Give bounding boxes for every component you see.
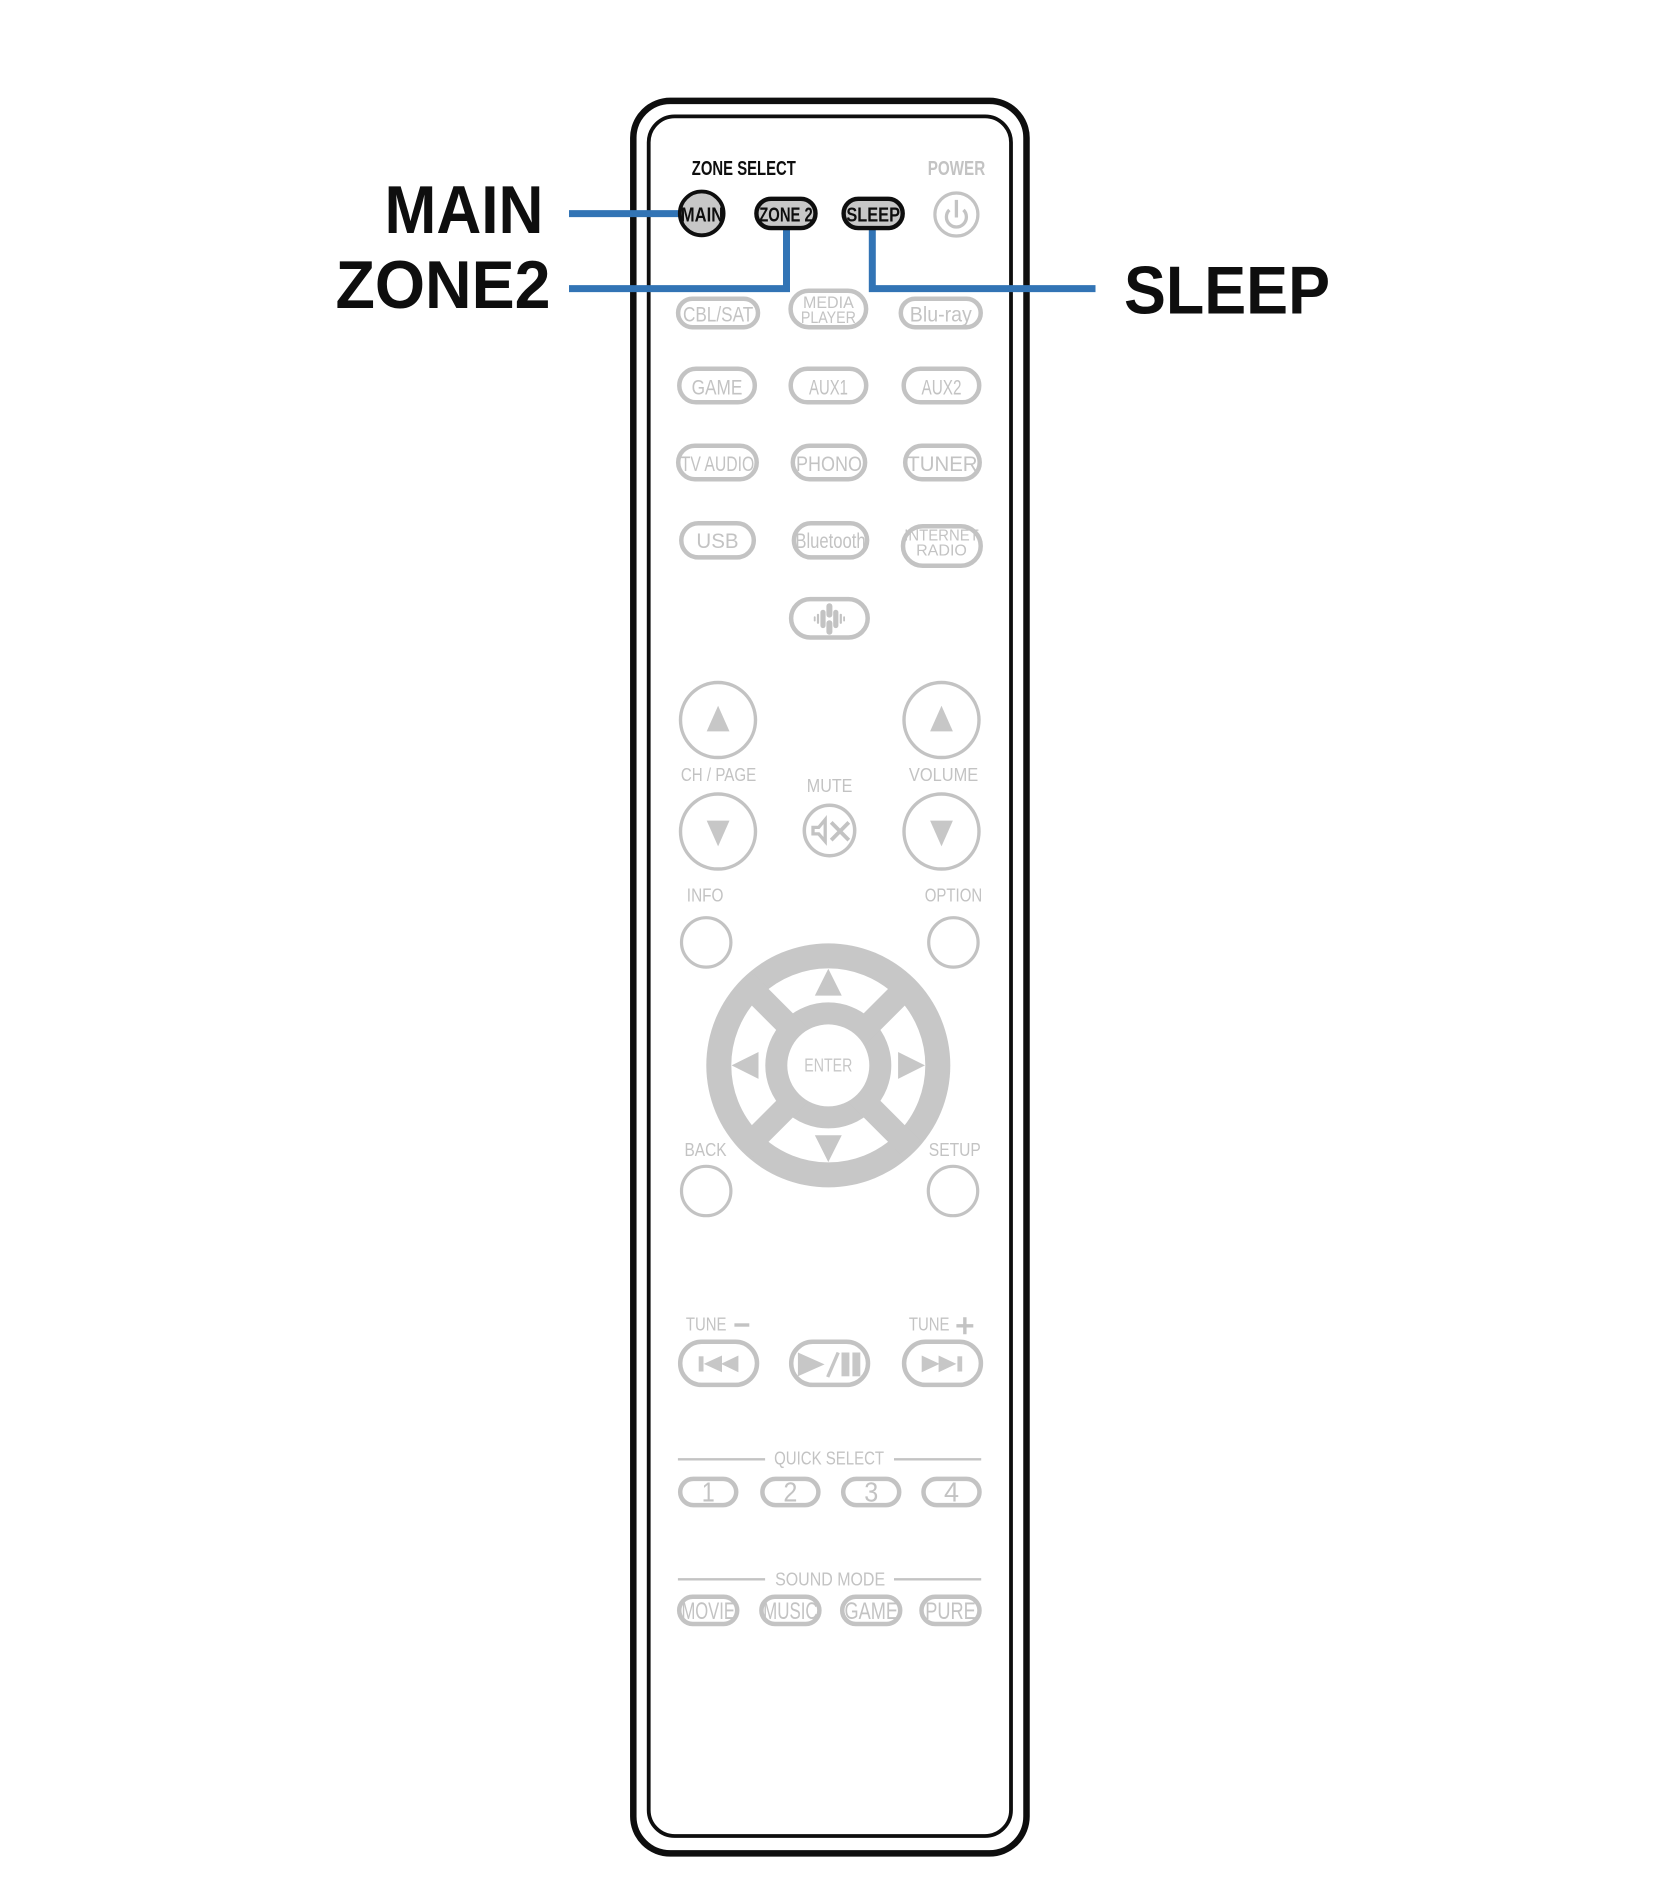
svg-text:POWER: POWER bbox=[928, 158, 986, 180]
svg-text:MAIN: MAIN bbox=[385, 173, 544, 248]
svg-text:ENTER: ENTER bbox=[804, 1056, 852, 1076]
svg-text:SOUND MODE: SOUND MODE bbox=[775, 1569, 885, 1590]
svg-text:TUNER: TUNER bbox=[907, 453, 977, 476]
svg-text:CH / PAGE: CH / PAGE bbox=[681, 764, 756, 785]
svg-text:Blu-ray: Blu-ray bbox=[910, 303, 972, 326]
svg-text:TUNE: TUNE bbox=[686, 1314, 727, 1335]
svg-text:3: 3 bbox=[864, 1476, 878, 1507]
svg-text:MAIN: MAIN bbox=[681, 204, 724, 226]
svg-text:CBL/SAT: CBL/SAT bbox=[683, 303, 753, 326]
svg-text:RADIO: RADIO bbox=[916, 542, 967, 559]
svg-text:SETUP: SETUP bbox=[929, 1139, 981, 1160]
svg-text:VOLUME: VOLUME bbox=[909, 764, 978, 785]
svg-text:GAME: GAME bbox=[844, 1598, 898, 1625]
svg-text:QUICK SELECT: QUICK SELECT bbox=[774, 1448, 884, 1469]
svg-text:MUTE: MUTE bbox=[807, 775, 853, 796]
svg-text:PHONO: PHONO bbox=[796, 453, 862, 476]
svg-text:BACK: BACK bbox=[685, 1139, 727, 1160]
svg-text:MOVIE: MOVIE bbox=[681, 1598, 735, 1625]
svg-text:SLEEP: SLEEP bbox=[846, 204, 900, 226]
svg-text:GAME: GAME bbox=[692, 376, 743, 399]
svg-text:INFO: INFO bbox=[687, 885, 724, 906]
svg-text:SLEEP: SLEEP bbox=[1124, 254, 1330, 329]
svg-text:TUNE: TUNE bbox=[909, 1314, 950, 1335]
svg-text:PURE: PURE bbox=[925, 1598, 976, 1625]
svg-text:USB: USB bbox=[696, 530, 738, 553]
svg-text:2: 2 bbox=[783, 1476, 797, 1507]
svg-text:OPTION: OPTION bbox=[925, 885, 983, 906]
svg-text:TV AUDIO: TV AUDIO bbox=[681, 453, 755, 476]
svg-text:Bluetooth: Bluetooth bbox=[795, 530, 865, 553]
svg-text:PLAYER: PLAYER bbox=[801, 308, 856, 327]
svg-text:AUX1: AUX1 bbox=[809, 376, 848, 399]
svg-text:1: 1 bbox=[702, 1476, 715, 1507]
svg-text:ZONE 2: ZONE 2 bbox=[759, 204, 813, 226]
svg-text:AUX2: AUX2 bbox=[922, 376, 962, 399]
svg-text:4: 4 bbox=[944, 1476, 959, 1507]
svg-text:ZONE2: ZONE2 bbox=[336, 248, 551, 323]
svg-text:ZONE SELECT: ZONE SELECT bbox=[692, 158, 796, 180]
svg-text:MUSIC: MUSIC bbox=[763, 1598, 818, 1625]
